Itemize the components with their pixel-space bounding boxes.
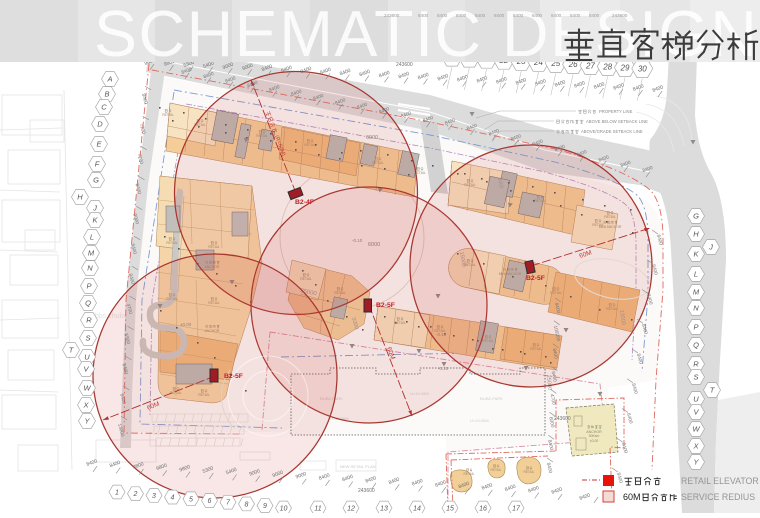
svg-text:8400: 8400 (570, 13, 581, 18)
svg-text:9: 9 (263, 503, 267, 510)
svg-text:C: C (101, 103, 107, 112)
svg-text:243600: 243600 (612, 13, 628, 18)
svg-text:6: 6 (208, 498, 212, 505)
svg-text:SCHEMATIC DESIGN: SCHEMATIC DESIGN (94, 0, 758, 70)
svg-text:ABOVE BELOW SETBACK LINE: ABOVE BELOW SETBACK LINE (586, 119, 648, 124)
svg-text:60M: 60M (623, 492, 641, 502)
svg-text:243600: 243600 (554, 416, 571, 422)
svg-text:8400: 8400 (589, 13, 600, 18)
svg-text:H: H (77, 193, 83, 202)
svg-text:RETAIL ELEVATOR: RETAIL ELEVATOR (681, 476, 759, 486)
svg-text:14: 14 (413, 506, 421, 513)
svg-text:A: A (106, 75, 112, 84)
svg-text:H: H (693, 230, 699, 239)
svg-text:W: W (692, 425, 700, 434)
svg-text:B2-5F: B2-5F (224, 373, 243, 380)
svg-text:8: 8 (245, 501, 249, 508)
svg-text:10: 10 (280, 506, 288, 513)
svg-text:B1/B2-PARK: B1/B2-PARK (480, 396, 503, 401)
svg-text:NEW RETAIL PLAN: NEW RETAIL PLAN (340, 464, 376, 469)
svg-text:U=10.00M: U=10.00M (470, 418, 489, 423)
svg-text:11: 11 (314, 506, 321, 513)
svg-text:B2-5F: B2-5F (376, 302, 395, 309)
svg-text:13: 13 (380, 506, 388, 513)
svg-text:4: 4 (171, 495, 175, 502)
svg-text:Q: Q (85, 299, 91, 308)
svg-text:±0.00: ±0.00 (590, 439, 599, 443)
svg-text:8400: 8400 (475, 13, 486, 18)
svg-text:X: X (692, 442, 699, 451)
svg-text:RETAIL: RETAIL (166, 241, 178, 245)
svg-text:R: R (693, 360, 699, 369)
svg-text:J: J (708, 243, 713, 252)
svg-text:8400: 8400 (494, 13, 505, 18)
svg-text:RETAIL: RETAIL (524, 470, 535, 474)
svg-text:16: 16 (479, 506, 487, 513)
svg-text:P: P (86, 282, 91, 291)
svg-text:B2-5F: B2-5F (526, 275, 545, 282)
svg-text:8400: 8400 (532, 13, 543, 18)
svg-text:D: D (97, 120, 103, 129)
svg-text:Q: Q (693, 341, 699, 350)
svg-text:243600: 243600 (384, 13, 400, 18)
svg-text:W: W (83, 384, 91, 393)
svg-text:F: F (95, 160, 100, 169)
svg-text:G: G (693, 212, 699, 221)
svg-text:5: 5 (189, 496, 193, 503)
svg-text:1: 1 (115, 490, 119, 497)
svg-text:G: G (93, 176, 99, 185)
svg-text:L: L (90, 233, 94, 242)
svg-text:12: 12 (347, 506, 355, 513)
svg-text:U: U (693, 395, 699, 404)
svg-text:17: 17 (512, 506, 521, 513)
svg-text:8400: 8400 (456, 13, 467, 18)
svg-text:ABOVE/GRADE SETBACK LINE: ABOVE/GRADE SETBACK LINE (581, 129, 643, 134)
svg-text:N: N (693, 304, 699, 313)
svg-text:15: 15 (446, 506, 454, 513)
svg-text:RETAIL: RETAIL (491, 468, 502, 472)
svg-text:8400: 8400 (513, 13, 524, 18)
svg-text:N: N (87, 264, 93, 273)
svg-text:SERVICE REDIUS: SERVICE REDIUS (681, 492, 755, 502)
svg-text:8400: 8400 (437, 13, 448, 18)
svg-text:RETAIL: RETAIL (162, 113, 174, 117)
svg-text:J: J (92, 204, 97, 213)
svg-text:PROPERTY LINE: PROPERTY LINE (599, 109, 633, 114)
svg-text:B2-4F: B2-4F (295, 199, 314, 206)
svg-text:X: X (82, 401, 89, 410)
svg-text:S: S (693, 373, 698, 382)
svg-text:S: S (85, 334, 90, 343)
svg-text:R: R (86, 316, 92, 325)
svg-text:B: B (104, 90, 109, 99)
svg-text:50Ksm: 50Ksm (589, 434, 600, 438)
svg-text:243600: 243600 (358, 488, 375, 494)
svg-text:8400: 8400 (551, 13, 562, 18)
svg-text:L: L (694, 270, 698, 279)
svg-text:RETAIL: RETAIL (464, 472, 475, 476)
svg-text:M: M (693, 288, 700, 297)
svg-text:8400: 8400 (418, 13, 429, 18)
svg-text:3: 3 (152, 493, 156, 500)
svg-text:2: 2 (133, 491, 138, 498)
svg-text:M: M (88, 249, 95, 258)
svg-text:P: P (693, 323, 698, 332)
svg-text:U: U (84, 353, 90, 362)
